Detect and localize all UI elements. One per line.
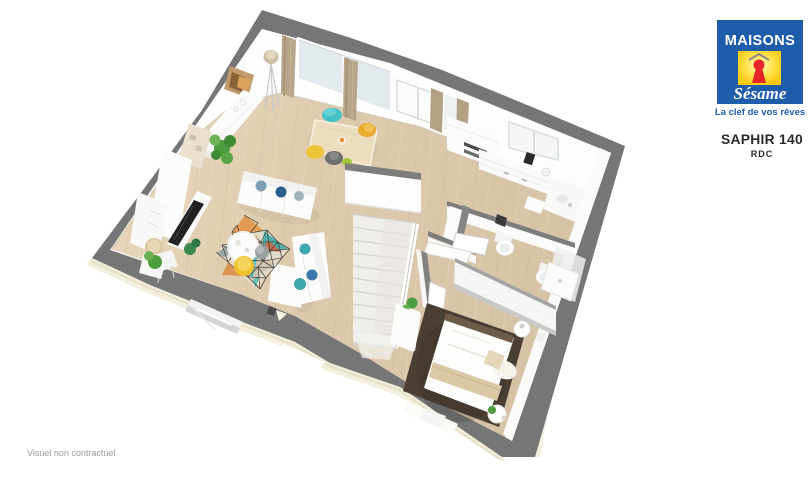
- svg-text:SAPHIR 140: SAPHIR 140: [721, 132, 803, 147]
- svg-text:RDC: RDC: [751, 149, 774, 159]
- svg-text:La clef de vos rêves: La clef de vos rêves: [715, 107, 805, 118]
- svg-text:MAISONS: MAISONS: [725, 33, 795, 49]
- svg-text:Sésame: Sésame: [734, 84, 787, 103]
- svg-text:Visuel non contractuel: Visuel non contractuel: [27, 448, 115, 458]
